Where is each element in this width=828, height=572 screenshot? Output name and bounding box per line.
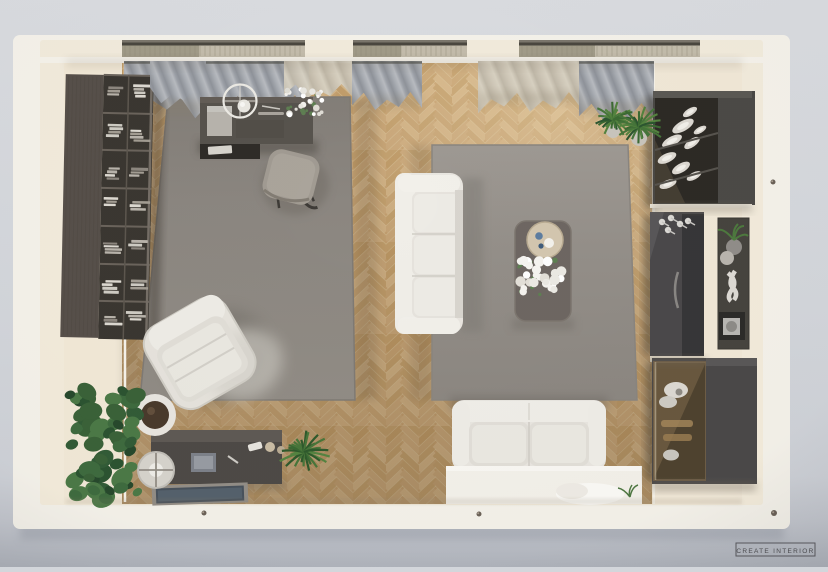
svg-text:CREATE INTERIOR: CREATE INTERIOR bbox=[736, 548, 814, 555]
